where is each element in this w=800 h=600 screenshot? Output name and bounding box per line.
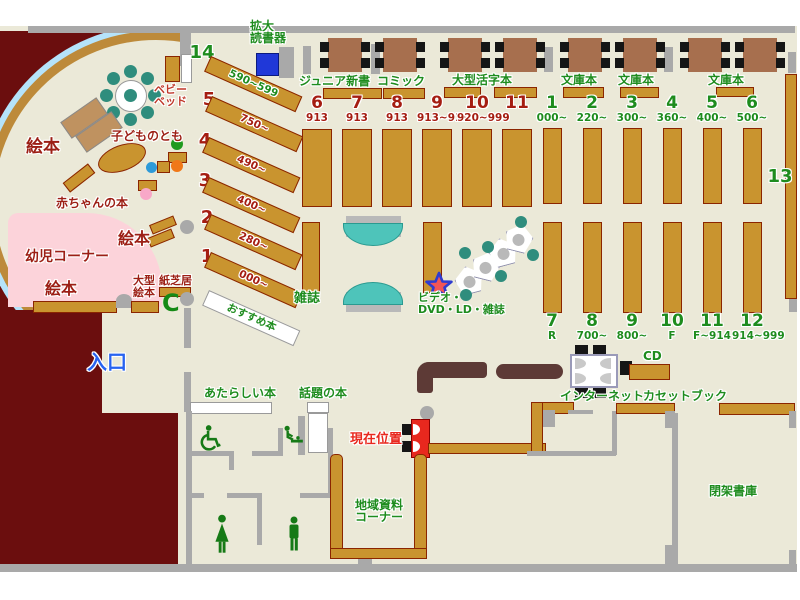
shelf-number-col: 7913 bbox=[337, 95, 377, 124]
comic-label: コミック bbox=[377, 75, 425, 87]
shelf-number-col: 3300~ bbox=[612, 95, 652, 124]
pillar bbox=[116, 294, 132, 308]
bunko-label-1: 文庫本 bbox=[561, 74, 597, 86]
picture-books-label-2: 絵本 bbox=[118, 233, 150, 245]
magazines-label: 雑誌 bbox=[294, 293, 320, 305]
shelf-number-col: 10F bbox=[652, 313, 692, 342]
shelf-number-col: 8700~ bbox=[572, 313, 612, 342]
pink-stool bbox=[140, 188, 152, 200]
bookshelf bbox=[422, 129, 452, 207]
junior-shinsho-label: ジュニア新書 bbox=[299, 75, 370, 87]
wall-closed-stacks bbox=[672, 413, 678, 566]
topical-books-label: 話題の本 bbox=[299, 387, 347, 399]
cd-shelf bbox=[629, 364, 670, 380]
stool bbox=[482, 241, 494, 253]
local-materials-shelf bbox=[414, 454, 427, 559]
bookshelf bbox=[623, 222, 642, 313]
blue-stool bbox=[146, 162, 157, 173]
reading-table bbox=[568, 38, 602, 72]
shelf-number-col: 10920~999 bbox=[457, 95, 497, 124]
bookshelf bbox=[743, 222, 762, 313]
man-toilet-icon bbox=[284, 514, 304, 554]
cd-label: CD bbox=[643, 350, 662, 362]
pillar bbox=[544, 47, 553, 72]
chairs bbox=[615, 42, 624, 52]
pillar bbox=[420, 406, 434, 420]
library-floor-map: 絵本 子どものとも 赤ちゃんの本 絵本 幼児コーナー 絵本 ベビー ベッド C … bbox=[0, 0, 800, 600]
chairs bbox=[495, 42, 504, 52]
bookshelf bbox=[302, 129, 332, 207]
bookshelf bbox=[543, 222, 562, 313]
marker-chair bbox=[402, 441, 411, 452]
large-picture-books-label: 大型 絵本 bbox=[133, 275, 155, 299]
pillar bbox=[664, 47, 673, 72]
bookshelf bbox=[719, 403, 795, 415]
pillar bbox=[543, 410, 555, 427]
stool bbox=[527, 249, 539, 261]
picture-books-label-1: 絵本 bbox=[26, 141, 60, 153]
magnifying-reader-device bbox=[256, 53, 279, 76]
reading-table bbox=[688, 38, 722, 72]
bookshelf bbox=[531, 402, 543, 455]
reading-table bbox=[448, 38, 482, 72]
wall-toilet bbox=[229, 451, 234, 470]
internet-label: インターネット bbox=[560, 390, 644, 402]
new-books-label: あたらしい本 bbox=[204, 387, 276, 399]
bookshelf bbox=[663, 128, 682, 204]
topical-books-shelf-2 bbox=[308, 413, 328, 453]
pillar bbox=[180, 292, 194, 306]
stool bbox=[515, 216, 527, 228]
service-counter-2 bbox=[496, 364, 563, 379]
shelf-number-col: 11F~914 bbox=[692, 313, 732, 342]
closed-stacks-label: 閉架書庫 bbox=[709, 485, 757, 497]
pillar bbox=[303, 46, 311, 74]
bookshelf bbox=[623, 128, 642, 204]
chairs bbox=[320, 42, 329, 52]
baby-books-label: 赤ちゃんの本 bbox=[56, 197, 128, 209]
shelf-number-col: 9800~ bbox=[612, 313, 652, 342]
wall-entrance bbox=[184, 308, 191, 348]
local-materials-label: 地域資料 コーナー bbox=[350, 499, 408, 523]
wall bbox=[568, 410, 593, 414]
marker-chair bbox=[402, 424, 411, 435]
pillar bbox=[665, 545, 677, 566]
entrance-dark-zone-2 bbox=[102, 413, 178, 568]
bookshelf bbox=[743, 128, 762, 204]
chairs bbox=[375, 42, 384, 52]
shelf-number-col: 5400~ bbox=[692, 95, 732, 124]
shelf-number-col: 6913 bbox=[297, 95, 337, 124]
wall-toilet bbox=[300, 493, 330, 498]
shelf-number-col: 6500~ bbox=[732, 95, 772, 124]
bunko-label-3: 文庫本 bbox=[708, 74, 744, 86]
bookshelf bbox=[502, 129, 532, 207]
shelf-number-col: 9913~919 bbox=[417, 95, 457, 124]
entrance-label: 入口 bbox=[87, 346, 127, 375]
reading-table bbox=[503, 38, 537, 72]
kids-round-table-seats bbox=[124, 89, 137, 102]
current-location-label: 現在位置 bbox=[350, 428, 402, 447]
bookshelf bbox=[663, 222, 682, 313]
bookshelf bbox=[342, 129, 372, 207]
service-counter-arm bbox=[417, 362, 433, 393]
reading-table bbox=[743, 38, 777, 72]
stool bbox=[495, 270, 507, 282]
bookshelf bbox=[583, 128, 602, 204]
new-books-shelf bbox=[190, 402, 272, 414]
kamishibai-stand-icon: C bbox=[162, 291, 180, 315]
chairs bbox=[735, 42, 744, 52]
pillar bbox=[789, 297, 797, 312]
wall-toilet bbox=[257, 493, 262, 545]
shelf-number-col: 12914~999 bbox=[732, 313, 772, 342]
topical-books-shelf bbox=[307, 402, 329, 413]
cassette-book-label: カセットブック bbox=[643, 390, 727, 402]
baby-change-icon bbox=[279, 424, 305, 450]
wall-toilet bbox=[186, 411, 192, 568]
baby-bed-label: ベビー ベッド bbox=[154, 84, 187, 108]
bunko-label-2: 文庫本 bbox=[618, 74, 654, 86]
stool bbox=[459, 247, 471, 259]
chairs bbox=[560, 42, 569, 52]
wall-toilet bbox=[186, 493, 204, 498]
shelf-number-col: 4360~ bbox=[652, 95, 692, 124]
large-print-label: 大型活字本 bbox=[452, 74, 512, 86]
reading-table bbox=[383, 38, 417, 72]
magnifying-reader-label: 拡大 読書器 bbox=[250, 20, 286, 44]
shelf-number-col: 11 bbox=[497, 95, 537, 112]
picture-books-label-3: 絵本 bbox=[45, 283, 77, 295]
wheelchair-icon bbox=[197, 424, 225, 452]
magazine-shelf bbox=[302, 222, 320, 293]
wall bbox=[527, 451, 616, 456]
bookshelf bbox=[382, 129, 412, 207]
chairs bbox=[440, 42, 449, 52]
bookshelf bbox=[462, 129, 492, 207]
infant-corner-label: 幼児コーナー bbox=[25, 251, 109, 263]
baby-bed-shelf bbox=[165, 56, 180, 82]
pillar bbox=[789, 411, 796, 428]
kamishibai-label: 紙芝居 bbox=[159, 275, 192, 287]
local-materials-shelf bbox=[330, 548, 427, 559]
wall-top bbox=[28, 26, 795, 33]
pillar bbox=[788, 52, 796, 73]
chairs bbox=[680, 42, 689, 52]
reading-table bbox=[328, 38, 362, 72]
shelf-number-col: 7R bbox=[532, 313, 572, 342]
woman-toilet-icon bbox=[211, 514, 233, 554]
bookshelf bbox=[583, 222, 602, 313]
bookshelf bbox=[703, 128, 722, 204]
wall bbox=[612, 411, 617, 455]
large-picture-books-shelf bbox=[131, 301, 159, 313]
video-label: ビデオ・ DVD・LD・雑誌 bbox=[418, 292, 505, 316]
reading-table bbox=[623, 38, 657, 72]
bookshelf bbox=[543, 128, 562, 204]
picture-books-bottom-shelf bbox=[33, 301, 117, 313]
bookshelf bbox=[703, 222, 722, 313]
kids-step-shelf bbox=[157, 161, 170, 173]
local-materials-shelf bbox=[330, 454, 343, 559]
shelf-number-col: 8913 bbox=[377, 95, 417, 124]
shelf-number-col: 13 bbox=[760, 168, 800, 185]
shelf-number-col: 2220~ bbox=[572, 95, 612, 124]
pillar bbox=[789, 550, 796, 566]
kodomo-no-tomo-label: 子どものとも bbox=[111, 130, 183, 142]
shelf-number-col: 1000~ bbox=[532, 95, 572, 124]
orange-stool bbox=[171, 160, 183, 172]
pillar bbox=[279, 47, 294, 78]
